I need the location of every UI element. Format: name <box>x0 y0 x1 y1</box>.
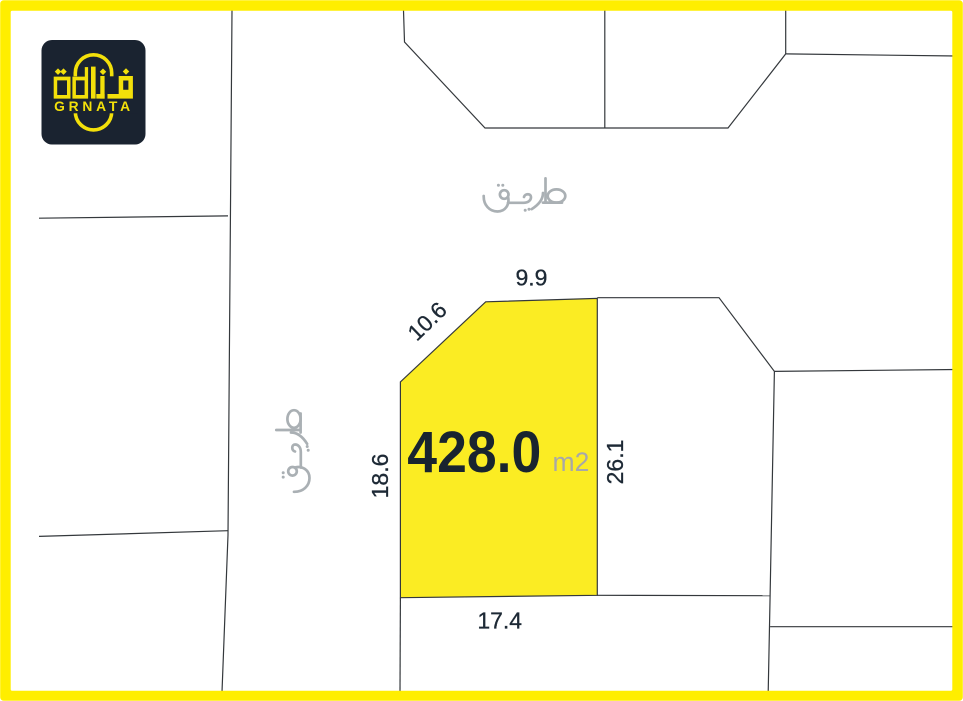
svg-text:GRNATA: GRNATA <box>54 99 134 114</box>
svg-text:18.6: 18.6 <box>367 454 393 499</box>
svg-text:17.4: 17.4 <box>477 608 522 634</box>
svg-text:428.0: 428.0 <box>407 420 541 485</box>
svg-text:9.9: 9.9 <box>516 265 548 291</box>
svg-text:m2: m2 <box>553 447 590 477</box>
svg-text:26.1: 26.1 <box>602 440 628 485</box>
